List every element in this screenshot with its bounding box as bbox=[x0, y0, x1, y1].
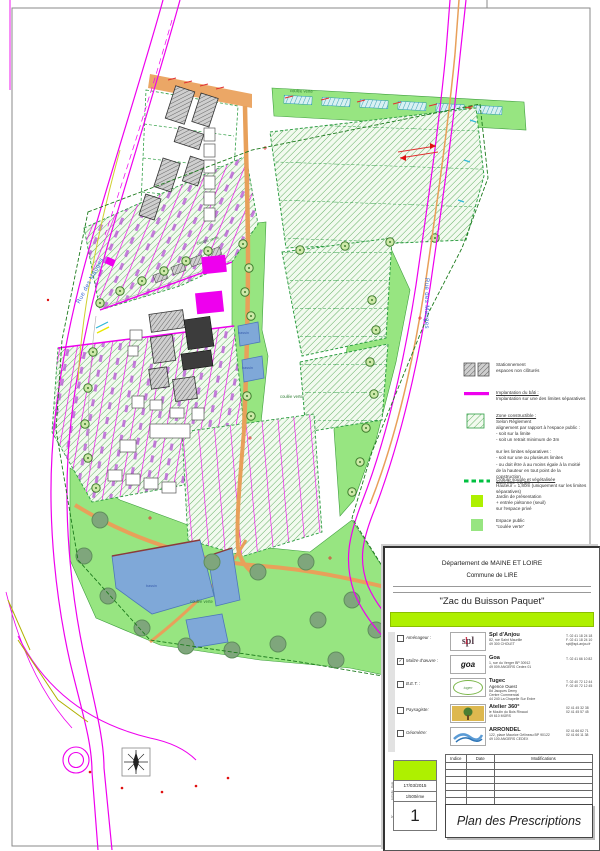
legend-item-implantation: Implantation du bâti : Implantation sur … bbox=[462, 390, 594, 402]
divider bbox=[393, 592, 591, 593]
revisions-table: Indice Date Modifications bbox=[445, 754, 593, 805]
parking-hatch-icon bbox=[462, 362, 491, 377]
revision-row bbox=[446, 777, 593, 784]
company-contact: T. 02 40 72 12 44 F. 02 40 72 12 45 bbox=[566, 678, 600, 688]
legend-item-cloture: Clôture souple et végétalisée Hauteur = … bbox=[462, 477, 594, 495]
revision-row bbox=[446, 791, 593, 798]
project-color-bar bbox=[390, 612, 594, 627]
revision-row bbox=[446, 770, 593, 777]
checkbox-icon bbox=[397, 681, 404, 688]
checkbox-icon bbox=[397, 707, 404, 714]
company-row-maitre-doeuvre: ✓Maître d'œuvre : goa Goa1, rue du Verge… bbox=[397, 655, 595, 675]
company-address: 82, rue Saint Maurille 49 300 CHOLET bbox=[489, 638, 563, 646]
company-role: Paysagiste: bbox=[406, 707, 429, 712]
legend-item-jardin: Jardin de présentation + entrée piétonne… bbox=[462, 494, 594, 512]
company-address: 122, place Maurice Gélineau BP 90122 49 … bbox=[489, 733, 563, 741]
legend-text: Selon Règlement alignement par rapport à… bbox=[496, 419, 580, 486]
company-contact: 02 41 45 32 38 02 41 45 57 45 bbox=[566, 704, 600, 714]
number-side-label: N° bbox=[390, 815, 394, 818]
company-contact: T. 02 41 18 24 18 F. 02 41 18 24 10 spl@… bbox=[566, 632, 600, 646]
green-hatch-icon bbox=[462, 413, 491, 486]
divider bbox=[393, 586, 591, 587]
legend-text: Stationnement espaces non clôturés bbox=[496, 362, 539, 377]
revisions-header-modifications: Modifications bbox=[494, 755, 592, 763]
legend-text: Espace public "coulée verte" bbox=[496, 518, 525, 532]
company-row-paysagiste: Paysagiste: Atelier 360°le Moulin du Boi… bbox=[397, 704, 595, 724]
company-role: Aménageur : bbox=[406, 635, 431, 640]
revisions-header-date: Date bbox=[466, 755, 494, 763]
company-row-bet: B.E.T. : tugec TugecAgence Ouest8d Jacqu… bbox=[397, 678, 595, 701]
magenta-line-icon bbox=[462, 390, 491, 402]
goa-logo: goa bbox=[450, 655, 486, 674]
company-row-amenageur: Aménageur : spl1 Spl d'Anjou82, rue Sain… bbox=[397, 632, 595, 652]
plan-date: 17/03/2015 bbox=[393, 781, 437, 792]
department-title: Département de MAINE ET LOIRE bbox=[385, 560, 599, 567]
meta-column: 17/03/2015 1/500ème 1 bbox=[393, 760, 437, 831]
green-dashed-line-icon bbox=[462, 477, 491, 495]
arrondel-logo bbox=[450, 727, 486, 746]
date-side-label: Date bbox=[390, 782, 394, 788]
company-row-geometre: Géomètre: ARRONDEL122, place Maurice Gél… bbox=[397, 727, 595, 747]
company-address: 1, rue du Verger BP 30912 49 009 ANGERS … bbox=[489, 661, 563, 669]
lime-square-icon bbox=[462, 494, 491, 512]
legend: Stationnement espaces non clôturés Impla… bbox=[462, 356, 594, 540]
company-contact: 02 41 66 62 71 02 41 66 11 38 bbox=[566, 727, 600, 737]
revision-row bbox=[446, 784, 593, 791]
company-role: Géomètre: bbox=[406, 730, 427, 735]
checkbox-icon bbox=[397, 635, 404, 642]
revision-row bbox=[446, 763, 593, 770]
compass-rose bbox=[122, 748, 150, 776]
checkbox-checked-icon: ✓ bbox=[397, 658, 404, 665]
atelier-360-logo bbox=[450, 704, 486, 723]
indice-color-swatch bbox=[393, 760, 437, 781]
legend-text: Implantation sur une des limites séparat… bbox=[496, 396, 585, 402]
company-address: le Moulin du Bois Rinaud 49 610 MÛRS bbox=[489, 710, 563, 718]
company-rows: Aménageur : spl1 Spl d'Anjou82, rue Sain… bbox=[397, 632, 595, 750]
company-role: Maître d'œuvre : bbox=[406, 658, 438, 663]
company-contact: T. 02 41 66 10 82 bbox=[566, 655, 600, 661]
legend-text: Jardin de présentation + entrée piétonne… bbox=[496, 494, 546, 512]
project-title: "Zac du Buisson Paquet" bbox=[385, 596, 599, 607]
tugec-logo: tugec bbox=[450, 678, 486, 697]
spl-logo: spl1 bbox=[450, 632, 486, 651]
company-role: B.E.T. : bbox=[406, 681, 420, 686]
checkbox-icon bbox=[397, 730, 404, 737]
commune-title: Commune de LIRE bbox=[385, 573, 599, 579]
legend-item-zone-constructible: Zone constructible : Selon Règlement ali… bbox=[462, 413, 594, 486]
revisions-header-indice: Indice bbox=[446, 755, 467, 763]
plan-title: Plan des Prescriptions bbox=[445, 804, 593, 838]
green-square-icon bbox=[462, 518, 491, 532]
company-address: 8d Jacques Demy Centre Commercial 44 240… bbox=[489, 689, 563, 701]
title-block: Département de MAINE ET LOIRE Commune de… bbox=[383, 546, 600, 851]
plan-scale: 1/500ème bbox=[393, 792, 437, 802]
row-strip bbox=[388, 632, 395, 752]
legend-item-espace-public: Espace public "coulée verte" bbox=[462, 518, 594, 532]
legend-item-stationnement: Stationnement espaces non clôturés bbox=[462, 362, 594, 377]
plan-sheet: { "sheet": {"background": "#ffffff", "fr… bbox=[0, 0, 600, 850]
plan-number: 1 bbox=[393, 802, 437, 831]
scale-side-label: Echelle bbox=[390, 790, 394, 800]
